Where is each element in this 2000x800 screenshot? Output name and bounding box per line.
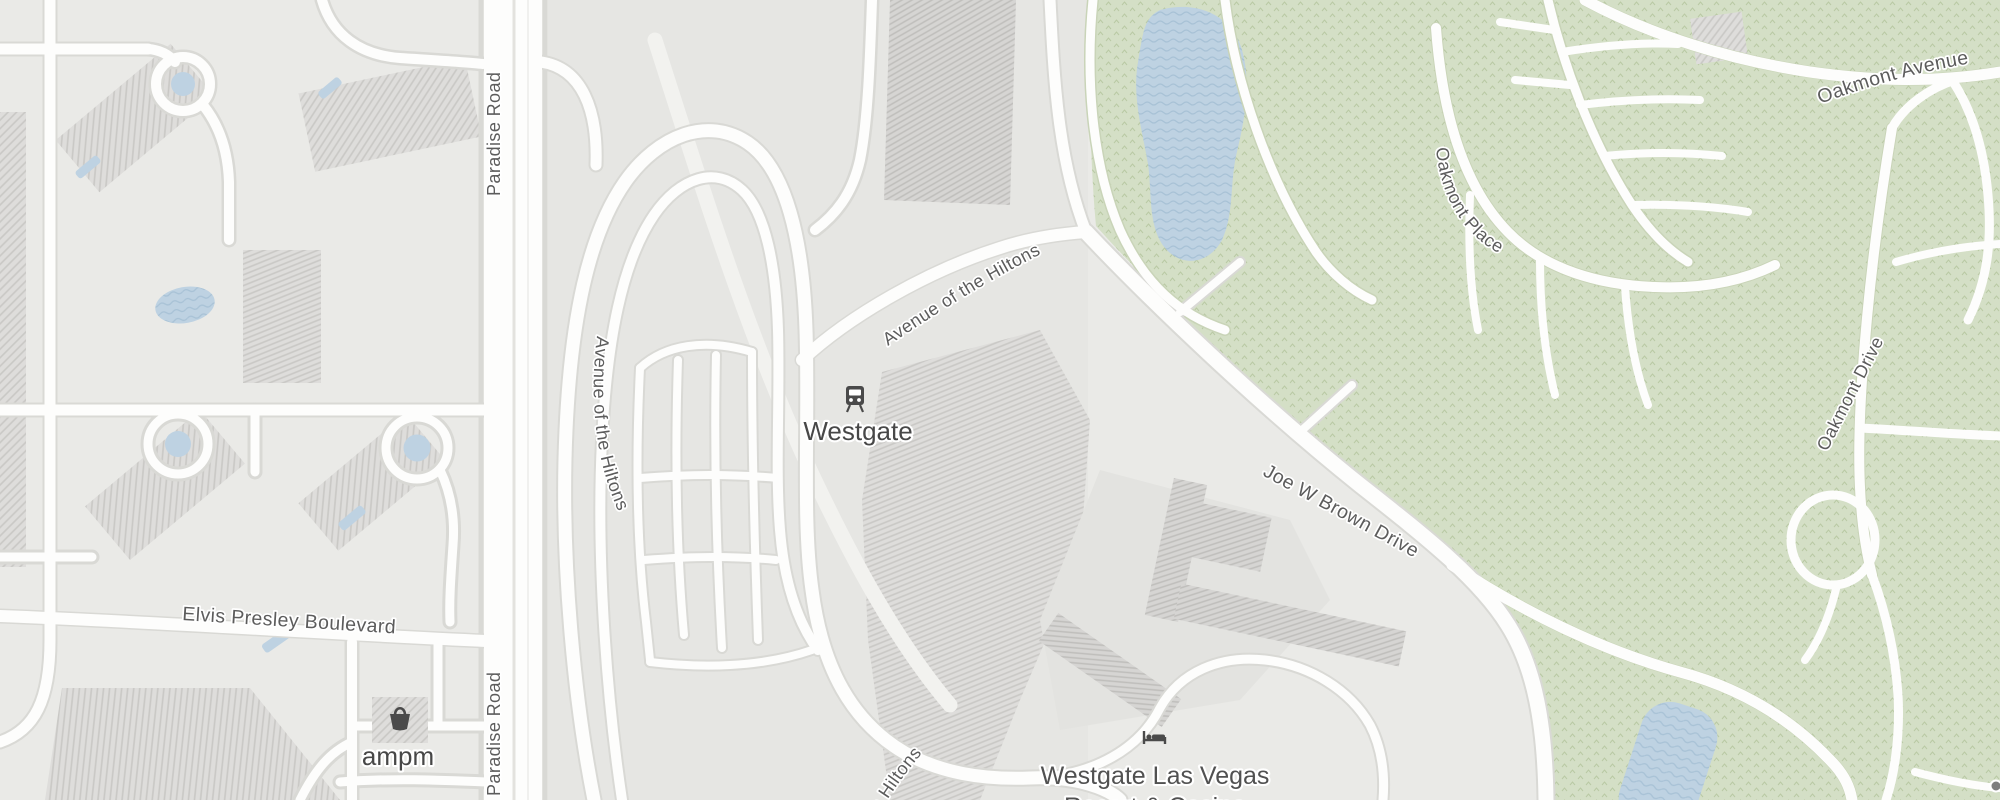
cul-de-sac-pond	[404, 435, 431, 462]
ampm-label[interactable]: ampm	[362, 741, 434, 771]
resort-label-line1[interactable]: Westgate Las Vegas	[1041, 762, 1270, 790]
westgate-station-label[interactable]: Westgate	[803, 416, 912, 446]
cul-de-sac-pond	[171, 72, 195, 96]
parking-structure-north	[884, 0, 1016, 205]
cul-de-sac-pond	[165, 431, 191, 457]
map-canvas[interactable]: Westgate ampm Westgate Las Vegas Resort …	[0, 0, 2000, 800]
street-label-paradise-road-top: Paradise Road	[484, 72, 504, 196]
resort-label-line2[interactable]: Resort & Casino	[1064, 793, 1246, 800]
poi-ampm[interactable]: ampm	[362, 697, 434, 771]
map-svg[interactable]: Westgate ampm Westgate Las Vegas Resort …	[0, 0, 2000, 800]
poi-dot[interactable]	[1991, 781, 2000, 792]
street-label-paradise-road-bottom: Paradise Road	[484, 672, 504, 796]
